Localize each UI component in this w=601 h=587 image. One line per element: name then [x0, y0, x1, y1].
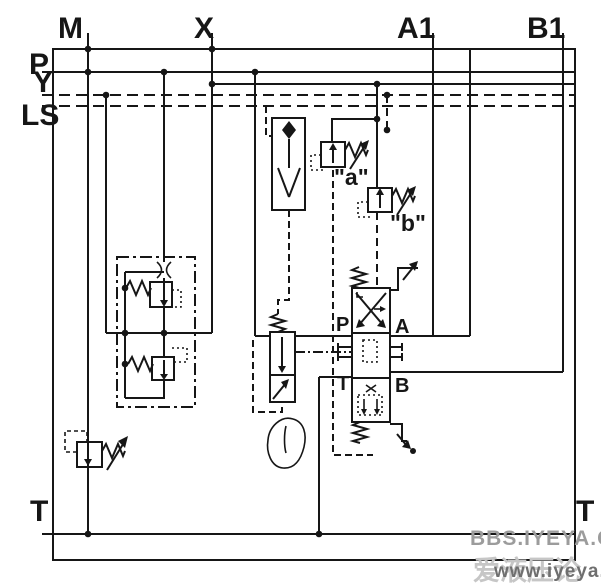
port-label-a1: A1: [397, 14, 435, 44]
rail-label-t-right: T: [576, 497, 594, 527]
port-label-x: X: [194, 14, 214, 44]
port-label-b1: B1: [527, 14, 565, 44]
a1-port-line: [390, 33, 470, 336]
port-label-m: M: [58, 14, 83, 44]
valve-port-label-b: B: [395, 376, 409, 396]
hand-drawn-blob: [268, 418, 306, 468]
pilot-relief-label-a: "a": [334, 166, 369, 189]
valve-port-label-t: T: [337, 374, 349, 394]
tank-relief-valve: [65, 431, 128, 470]
schematic-drawing: [0, 0, 601, 587]
watermark-bbs: BBS.IYEYA.CN: [470, 527, 601, 551]
main-spool-valve: [319, 261, 418, 534]
valve-port-label-a: A: [395, 317, 409, 337]
schematic-canvas: M X A1 B1 P Y LS T T P A T B "a" "b" BBS…: [0, 0, 601, 587]
check-valve: [266, 106, 305, 314]
watermark-url: www.iyeya.cn: [494, 561, 601, 583]
rail-label-ls: LS: [21, 101, 59, 131]
rail-label-t-left: T: [30, 497, 48, 527]
valve-port-label-p: P: [336, 315, 349, 335]
outer-border: [53, 49, 575, 560]
ls-rail-lines: [42, 95, 575, 106]
p-branch-compensator: [255, 72, 270, 336]
rail-label-y: Y: [33, 68, 53, 98]
pilot-relief-label-b: "b": [390, 212, 426, 235]
